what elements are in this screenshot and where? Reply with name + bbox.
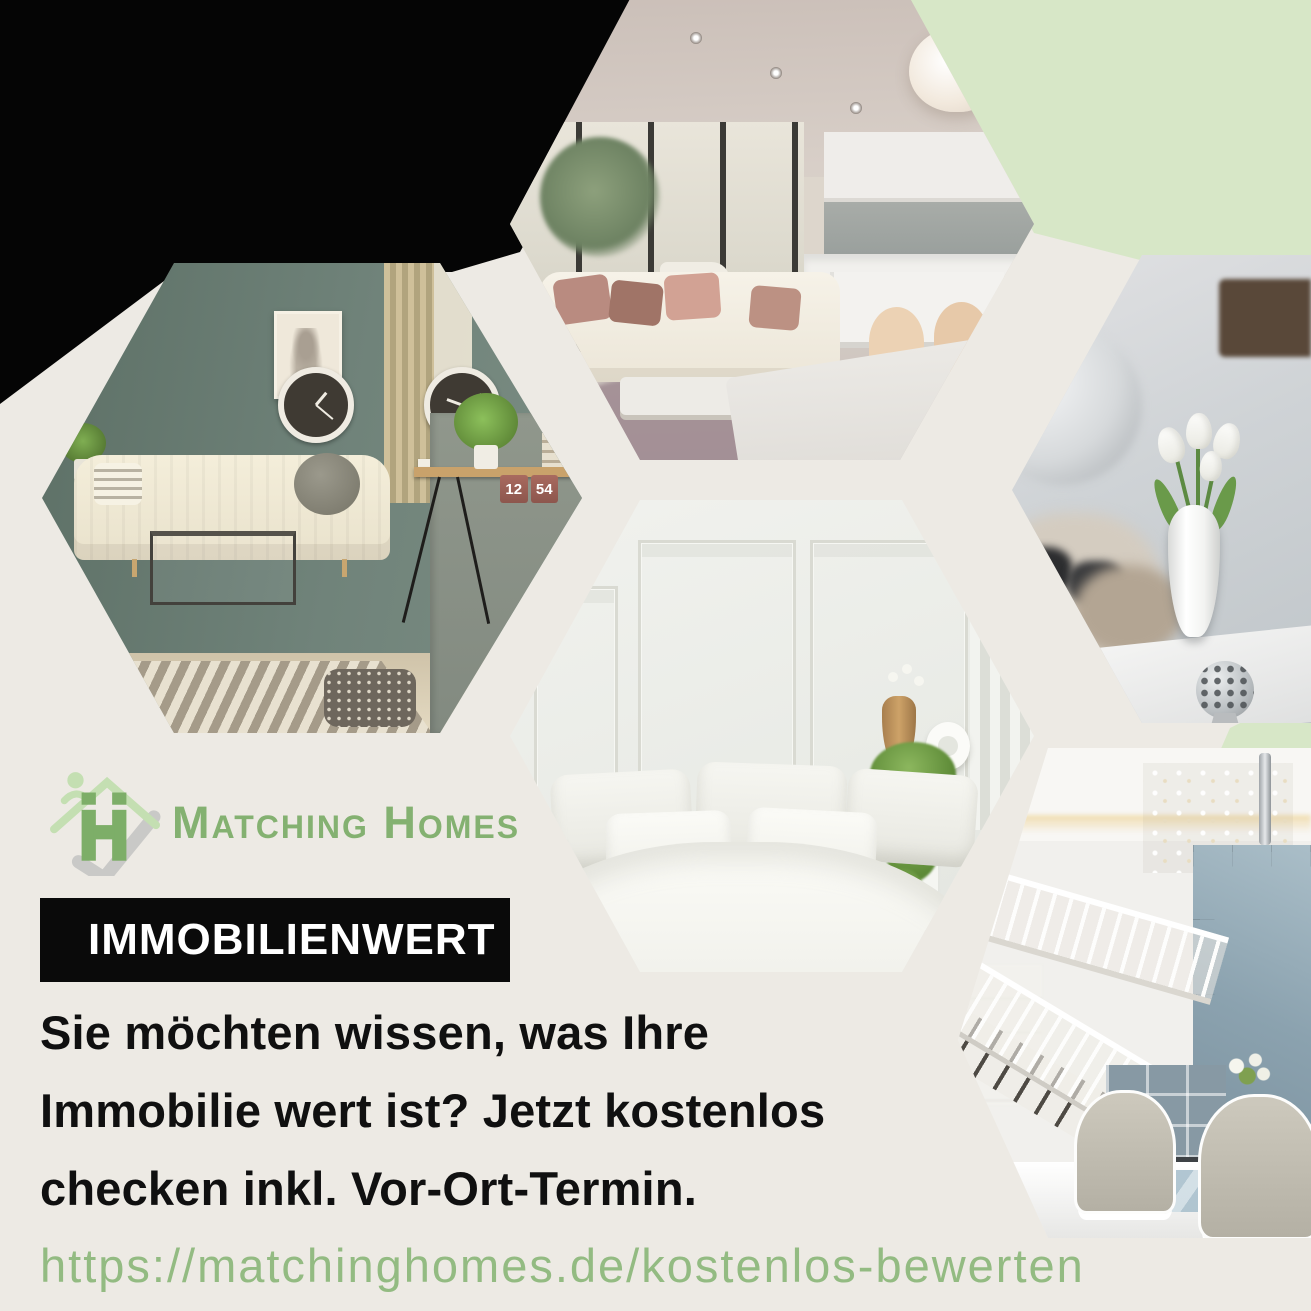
sofa-pillow — [608, 279, 664, 326]
headline-line: Sie möchten wissen, was Ihre — [40, 994, 1020, 1072]
ceiling-spotlight — [850, 102, 862, 114]
sofa-pillow — [552, 273, 613, 325]
book-stack — [542, 433, 582, 467]
flip-clock-hours: 12 — [500, 475, 528, 503]
wood-shelf — [1219, 279, 1311, 357]
glass-coffee-table — [150, 531, 296, 605]
ornament-base — [1210, 713, 1240, 725]
clock-hand — [315, 404, 333, 420]
flower-bud — [888, 672, 898, 682]
headline-text: Sie möchten wissen, was Ihre Immobilie w… — [40, 994, 1020, 1228]
silver-sphere-ornament — [1196, 661, 1254, 719]
pleated-column — [970, 500, 1034, 830]
brand-logo: Matching Homes — [46, 760, 606, 880]
patterned-pouf — [324, 669, 416, 727]
flower-bud — [902, 664, 912, 674]
wall-disc-decor — [1010, 325, 1142, 485]
striped-pillow — [94, 463, 142, 505]
photo-white-tulips — [1010, 253, 1311, 725]
house-with-person-and-check-icon — [46, 764, 162, 876]
round-cushion — [294, 453, 360, 515]
courtyard-tree — [540, 137, 660, 257]
headline-line: checken inkl. Vor-Ort-Termin. — [40, 1150, 1020, 1228]
website-url-link[interactable]: https://matchinghomes.de/kostenlos-bewer… — [40, 1238, 1300, 1293]
desk-plant — [454, 393, 518, 451]
wall-clock-london — [278, 367, 354, 443]
sofa-pillow — [748, 285, 801, 331]
flower-arrangement — [1223, 1050, 1277, 1090]
dark-pillow — [1012, 547, 1072, 595]
sofa-pillow — [663, 272, 721, 321]
brand-name: Matching Homes — [172, 797, 520, 849]
white-tulip — [1186, 413, 1212, 449]
flip-clock: 12 54 — [500, 475, 558, 503]
topic-badge-label: IMMOBILIENWERT — [88, 915, 496, 965]
headline-line: Immobilie wert ist? Jetzt kostenlos — [40, 1072, 1020, 1150]
white-vase — [1168, 505, 1220, 637]
photo-bright-bedroom — [510, 500, 1034, 972]
sofa-leg — [342, 559, 347, 577]
flower-bud — [914, 676, 924, 686]
sofa-leg — [132, 559, 137, 577]
kitchen-backsplash — [824, 202, 1034, 254]
ceiling-spotlight — [770, 67, 782, 79]
photo-green-living-room: LONDON TOKYO 12 54 — [42, 263, 582, 733]
lounge-armchair — [1074, 1090, 1176, 1214]
white-table — [1046, 625, 1311, 725]
social-post-canvas: LONDON TOKYO 12 54 — [0, 0, 1311, 1311]
white-tulip — [1154, 424, 1189, 466]
topic-badge: IMMOBILIENWERT — [40, 898, 510, 982]
ceiling-spotlight — [690, 32, 702, 44]
chandelier-rod — [1259, 753, 1271, 845]
flip-clock-minutes: 54 — [531, 475, 559, 503]
desk-plant-pot — [474, 445, 498, 469]
lounge-armchair — [1198, 1094, 1311, 1240]
